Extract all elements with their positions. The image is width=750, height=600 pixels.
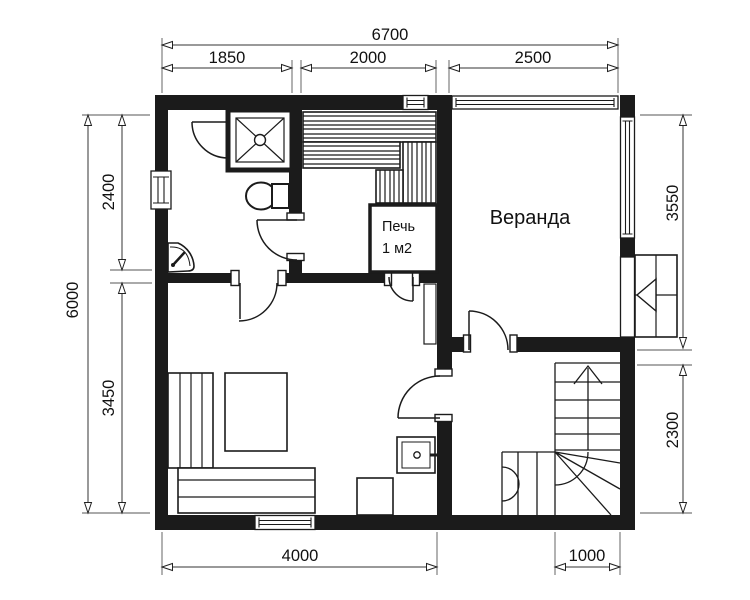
window-left-wall	[151, 171, 171, 209]
corner-sink	[168, 243, 194, 272]
wall-middle-1	[160, 273, 237, 283]
window-veranda-right	[621, 117, 635, 238]
living-room-door	[398, 376, 440, 418]
jamb	[435, 369, 452, 376]
room-label-veranda: Веранда	[490, 207, 571, 229]
dim-label-6700: 6700	[372, 26, 409, 44]
stair-curve	[502, 467, 519, 501]
shower-door	[192, 122, 228, 158]
window-veranda-top	[452, 96, 618, 109]
jamb	[278, 271, 286, 286]
jamb	[510, 335, 517, 352]
shower-cabin	[228, 110, 292, 170]
dim-label-1850: 1850	[209, 49, 246, 67]
wall-hall-veranda-right	[513, 337, 620, 352]
sauna-stove-door	[389, 277, 413, 301]
dim-label-3450: 3450	[100, 380, 118, 417]
wall-outer-left	[155, 95, 168, 530]
wall-outer-right-mid	[620, 238, 635, 257]
window-bottom-wall	[255, 516, 315, 530]
dim-label-2400: 2400	[100, 174, 118, 211]
veranda-door	[469, 311, 508, 350]
open-door-leaf-panel	[424, 284, 436, 344]
wall-outer-bottom	[155, 515, 635, 530]
dim-label-3550: 3550	[664, 185, 682, 222]
wall-middle-2	[280, 273, 388, 283]
wall-veranda-left-lower	[437, 418, 452, 530]
wall-outer-right-low	[620, 337, 635, 530]
dim-label-4000: 4000	[282, 547, 319, 565]
jamb	[287, 213, 304, 220]
stair-direction-arrow	[574, 366, 602, 450]
jamb	[231, 271, 239, 286]
bathroom-hall-door	[239, 283, 277, 321]
washbasin	[397, 437, 438, 473]
dim-label-6000: 6000	[64, 282, 82, 319]
stove: Печь 1 м2	[370, 205, 437, 272]
doorway-veranda-entry	[621, 257, 635, 337]
stove-label-line2: 1 м2	[382, 241, 412, 257]
floor-plan-drawing: Печь 1 м2	[0, 0, 750, 600]
dim-label-2500: 2500	[515, 49, 552, 67]
stove-label-line1: Печь	[382, 219, 415, 235]
wall-outer-right-top	[620, 95, 635, 117]
dim-label-2000: 2000	[350, 49, 387, 67]
stool	[357, 478, 393, 515]
toilet	[246, 183, 289, 210]
table	[225, 373, 287, 451]
window-top-small	[403, 96, 428, 110]
dim-label-2300: 2300	[664, 412, 682, 449]
wall-veranda-left-upper	[437, 95, 452, 373]
porch-steps	[635, 255, 677, 337]
dim-label-1000: 1000	[569, 547, 606, 565]
floor-plan-page: Печь 1 м2	[0, 0, 750, 600]
staircase	[502, 363, 620, 515]
